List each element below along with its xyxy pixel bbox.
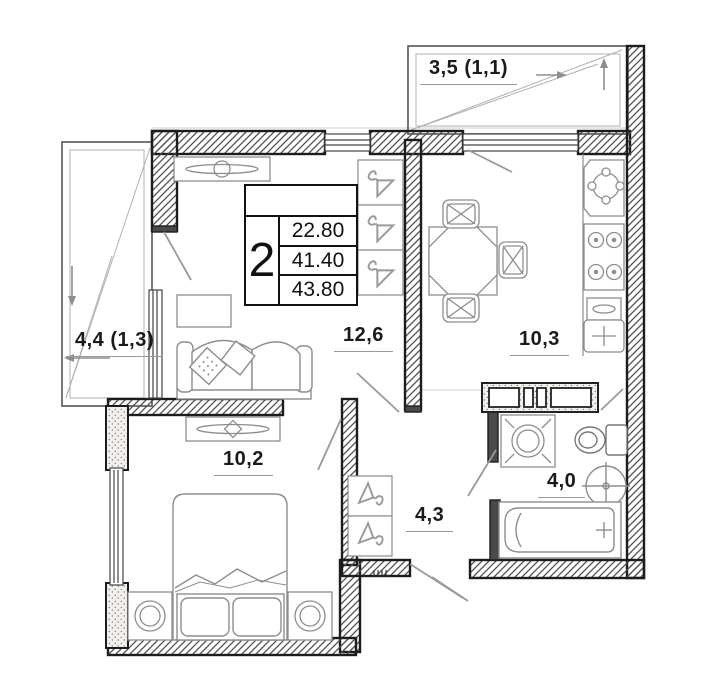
bedroom-door-swing	[318, 419, 341, 470]
label-balcony-left: 4,4 (1,3)	[66, 329, 163, 357]
kitchen-stove	[584, 224, 624, 290]
kitchen-sink	[584, 160, 624, 216]
label-living-room: 12,6	[334, 324, 393, 352]
living-area-value: 22.80	[280, 217, 356, 247]
label-hallway: 4,3	[406, 504, 453, 532]
tv-stand	[177, 295, 231, 327]
apartment-area-value: 41.40	[280, 247, 356, 277]
living-door-swing	[357, 373, 399, 412]
sofa	[177, 340, 312, 399]
label-kitchen: 10,3	[510, 328, 569, 356]
arrow-up-icon	[600, 58, 608, 90]
washing-machine	[501, 415, 555, 467]
bathtub	[499, 502, 621, 558]
kitchen-balcony-door-swing	[468, 150, 512, 172]
total-area-value: 43.80	[280, 276, 356, 304]
label-balcony-top: 3,5 (1,1)	[420, 57, 517, 85]
utility-closet	[482, 383, 598, 412]
kitchen-table	[429, 227, 497, 295]
hallway-wardrobe	[348, 476, 392, 556]
info-table-header-cell	[246, 186, 356, 217]
toilet	[575, 425, 627, 455]
entrance-door-swing2	[432, 577, 468, 601]
arrow-right-icon	[536, 71, 566, 79]
kitchen-washbasin	[584, 298, 624, 352]
balcony-door-swing	[164, 232, 191, 280]
hallway-door-swing	[468, 450, 496, 496]
rooms-count: 2	[246, 217, 280, 304]
apartment-info-table: 2 22.80 41.40 43.80	[244, 184, 358, 306]
arrow-down-icon	[68, 266, 76, 306]
label-bathroom: 4,0	[538, 470, 585, 498]
bed	[173, 494, 287, 640]
wardrobe-column	[358, 160, 403, 295]
label-bedroom: 10,2	[214, 448, 273, 476]
balcony-left	[62, 142, 152, 406]
floor-plan: 3,5 (1,1) 4,4 (1,3) 12,6 10,3 10,2 4,3 4…	[0, 0, 702, 700]
bathroom-door-swing	[601, 389, 623, 410]
living-ceiling-light	[174, 157, 270, 181]
bedroom-ceiling-light	[186, 417, 280, 441]
